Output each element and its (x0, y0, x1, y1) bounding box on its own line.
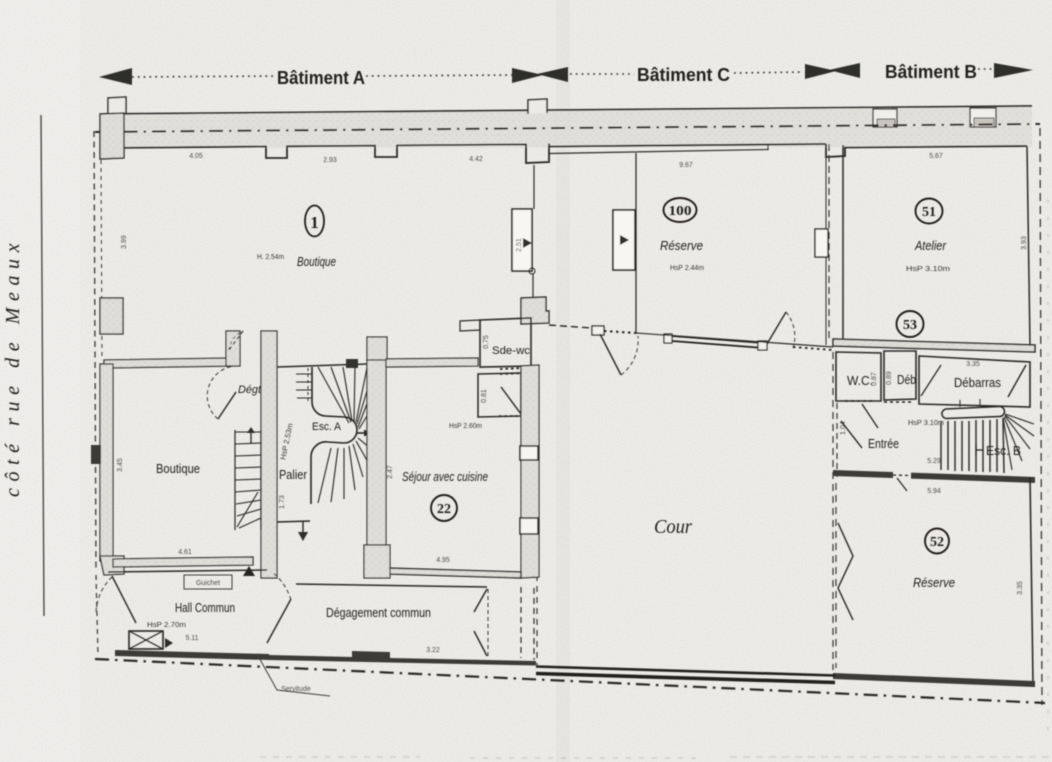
svg-text:HsP 2.44m: HsP 2.44m (670, 263, 704, 272)
svg-text:Guichet: Guichet (196, 580, 220, 587)
svg-text:Séjour avec cuisine: Séjour avec cuisine (402, 469, 488, 484)
svg-text:5.67: 5.67 (929, 153, 943, 160)
svg-text:HsP 2.60m: HsP 2.60m (449, 421, 482, 430)
svg-text:HsP 3.10m: HsP 3.10m (906, 264, 950, 273)
svg-text:3.99: 3.99 (121, 235, 128, 249)
svg-text:5.94: 5.94 (927, 488, 941, 495)
svg-text:2.47: 2.47 (387, 465, 394, 479)
svg-text:Débarras: Débarras (954, 375, 1001, 390)
svg-text:Bâtiment B: Bâtiment B (885, 61, 977, 82)
svg-text:côté rue de Meaux: côté rue de Meaux (2, 239, 24, 497)
svg-text:Palier: Palier (279, 467, 308, 482)
svg-text:3.45: 3.45 (117, 458, 124, 472)
svg-text:W.C.: W.C. (847, 373, 873, 388)
svg-text:Servitude: Servitude (281, 686, 311, 693)
svg-text:Bâtiment C: Bâtiment C (637, 64, 730, 85)
svg-text:100: 100 (669, 204, 692, 219)
svg-text:Sde-wc: Sde-wc (492, 345, 531, 357)
svg-text:1.73: 1.73 (279, 495, 286, 509)
svg-text:Réserve: Réserve (660, 238, 703, 253)
svg-text:Dégt: Dégt (238, 384, 262, 396)
svg-text:2.51: 2.51 (516, 238, 523, 252)
svg-text:3.22: 3.22 (426, 647, 440, 654)
svg-text:3.93: 3.93 (1021, 236, 1028, 250)
svg-text:22: 22 (437, 502, 451, 517)
svg-text:Déb: Déb (897, 372, 916, 387)
svg-text:Entrée: Entrée (868, 436, 899, 451)
svg-text:1: 1 (310, 213, 319, 232)
svg-text:Atelier: Atelier (914, 238, 946, 253)
svg-text:4.05: 4.05 (189, 153, 203, 160)
svg-text:Dégagement commun: Dégagement commun (326, 605, 431, 620)
svg-text:Réserve: Réserve (913, 575, 955, 590)
svg-text:Cour: Cour (654, 516, 692, 538)
svg-text:Bâtiment A: Bâtiment A (277, 67, 365, 88)
svg-text:9.67: 9.67 (679, 162, 693, 169)
svg-text:51: 51 (922, 205, 936, 220)
svg-text:Esc. A: Esc. A (312, 421, 342, 433)
svg-text:HsP 2.70m: HsP 2.70m (147, 620, 186, 629)
svg-text:Esc. B: Esc. B (986, 443, 1021, 458)
svg-text:0.89: 0.89 (886, 371, 893, 385)
svg-text:4.42: 4.42 (469, 156, 483, 163)
svg-text:HsP 3.10m: HsP 3.10m (908, 418, 944, 427)
svg-text:5.29: 5.29 (927, 458, 941, 465)
svg-text:0.87: 0.87 (871, 372, 878, 386)
svg-text:4.61: 4.61 (178, 549, 192, 556)
svg-text:5.11: 5.11 (185, 635, 198, 642)
svg-text:53: 53 (903, 318, 917, 333)
svg-text:Hall Commun: Hall Commun (175, 600, 235, 615)
svg-text:0.75: 0.75 (483, 335, 490, 349)
svg-text:Boutique: Boutique (297, 254, 336, 269)
svg-text:2.93: 2.93 (323, 157, 337, 164)
svg-text:H. 2.54m: H. 2.54m (257, 252, 284, 261)
svg-text:3.35: 3.35 (966, 361, 980, 368)
svg-text:Boutique: Boutique (156, 461, 200, 476)
svg-text:3.35: 3.35 (1017, 581, 1024, 595)
svg-text:0.81: 0.81 (481, 389, 488, 403)
svg-text:52: 52 (930, 535, 944, 550)
svg-text:4.95: 4.95 (436, 557, 450, 564)
